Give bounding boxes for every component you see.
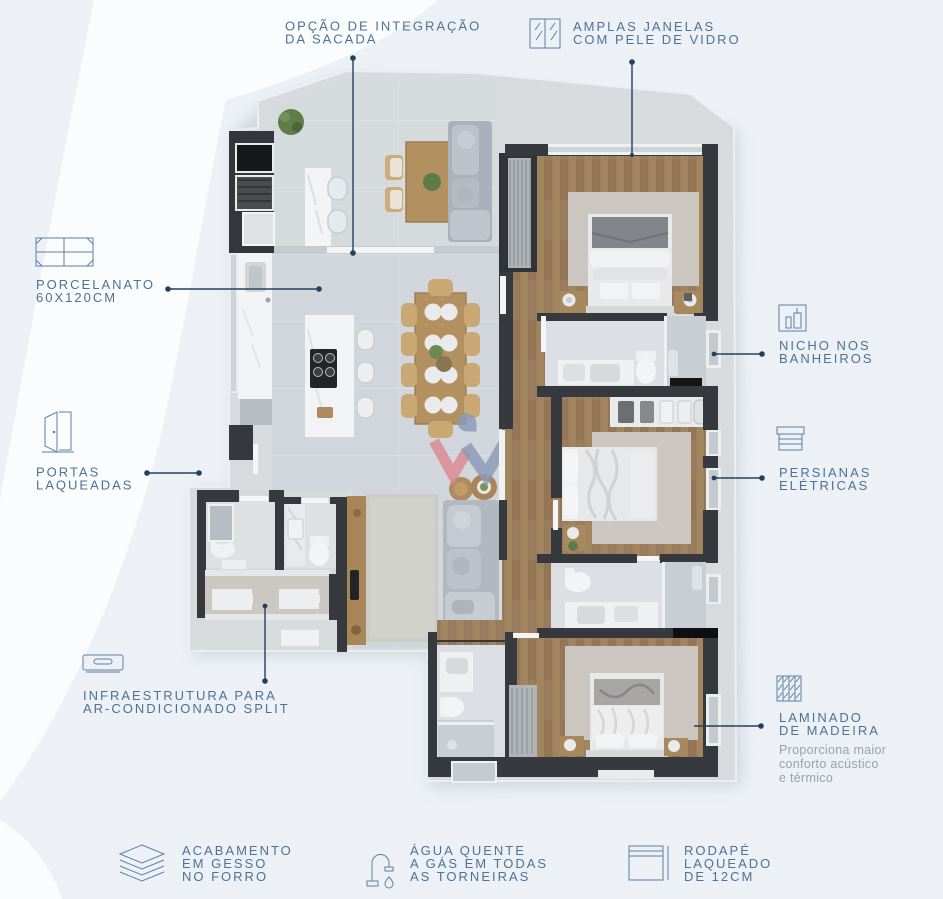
svg-text:conforto acústico: conforto acústico — [779, 757, 879, 771]
svg-text:AS TORNEIRAS: AS TORNEIRAS — [410, 869, 530, 884]
svg-text:LAQUEADAS: LAQUEADAS — [36, 478, 133, 493]
svg-text:NO FORRO: NO FORRO — [182, 869, 268, 884]
svg-text:ELÉTRICAS: ELÉTRICAS — [779, 478, 869, 493]
svg-text:DE MADEIRA: DE MADEIRA — [779, 723, 880, 738]
svg-text:60X120CM: 60X120CM — [36, 290, 117, 305]
svg-text:DA SACADA: DA SACADA — [285, 32, 377, 47]
svg-text:COM PELE DE VIDRO: COM PELE DE VIDRO — [573, 32, 741, 47]
svg-text:AR-CONDICIONADO SPLIT: AR-CONDICIONADO SPLIT — [83, 701, 290, 716]
svg-text:DE 12CM: DE 12CM — [684, 869, 754, 884]
svg-text:e térmico: e térmico — [779, 771, 833, 785]
svg-text:BANHEIROS: BANHEIROS — [779, 351, 874, 366]
svg-text:Proporciona maior: Proporciona maior — [779, 743, 886, 757]
